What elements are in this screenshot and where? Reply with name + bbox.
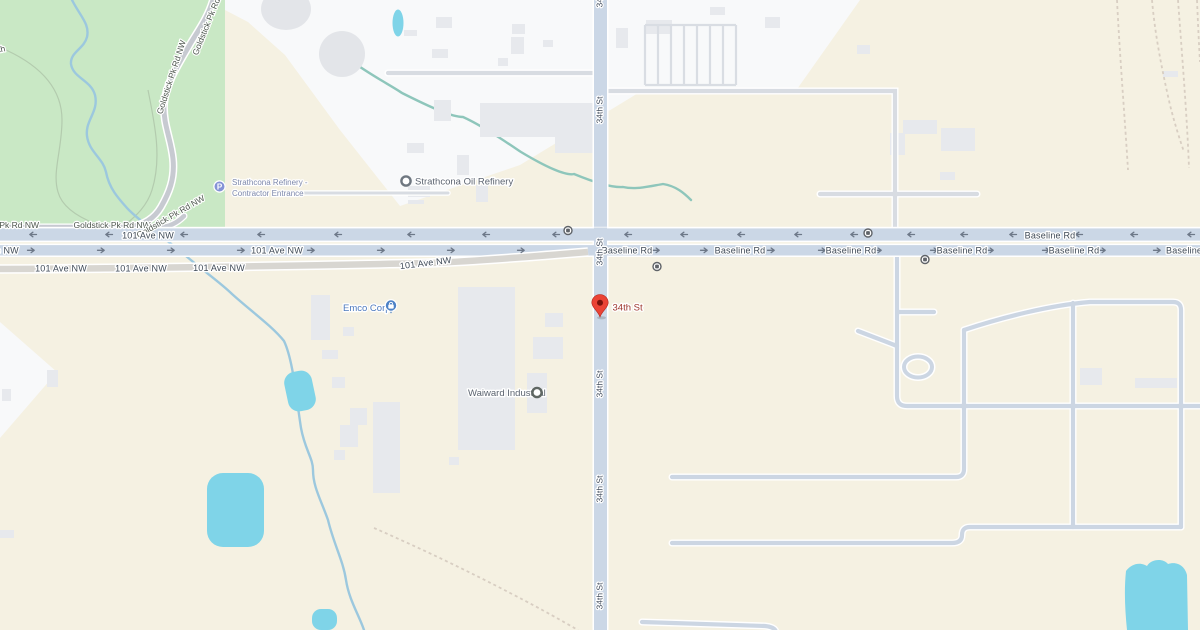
parking-label-line2: Contractor Entrance bbox=[232, 189, 304, 198]
parking-icon[interactable]: P bbox=[214, 181, 225, 192]
park-area bbox=[0, 0, 225, 228]
map-canvas[interactable]: ch Goldstick Pk Rd NW Goldstick Pk Rd NW… bbox=[0, 0, 1200, 630]
poi-strathcona-oil-refinery[interactable]: Strathcona Oil Refinery bbox=[401, 176, 513, 187]
baseline-rd-label: Baseline Rd bbox=[602, 246, 653, 256]
transit-station-icon[interactable] bbox=[864, 229, 872, 237]
34th-st-label: 34th St bbox=[595, 370, 605, 398]
baseline-rd-label: Baseline Rd bbox=[1025, 231, 1076, 241]
transit-station-icon[interactable] bbox=[564, 227, 572, 235]
34th-st-label: 34th St bbox=[595, 475, 605, 503]
baseline-rd-label: Baseline Rd bbox=[1049, 246, 1100, 256]
34th-st-label: 34th St bbox=[595, 0, 605, 7]
101-ave-label: 101 Ave NW bbox=[251, 246, 303, 256]
svg-text:P: P bbox=[217, 182, 223, 191]
pin-label: 34th St bbox=[613, 303, 643, 314]
oil-refinery-label: Strathcona Oil Refinery bbox=[415, 177, 513, 188]
101-ave-label: 101 Ave NW bbox=[122, 231, 174, 241]
transit-station-icon[interactable] bbox=[653, 263, 661, 271]
baseline-rd-label: Baseline Rd bbox=[937, 246, 988, 256]
parking-label-line1: Strathcona Refinery - bbox=[232, 178, 308, 187]
101-ave-label: 101 Ave NW bbox=[115, 264, 167, 274]
baseline-rd-label: Baseline Rd bbox=[826, 246, 877, 256]
poi-ring-icon[interactable] bbox=[532, 388, 541, 397]
34th-st-label: 34th St bbox=[595, 238, 605, 266]
baseline-rd-label: Baseline Rd bbox=[715, 246, 766, 256]
poi-ring-icon[interactable] bbox=[401, 176, 410, 185]
34th-st-label: 34th St bbox=[595, 582, 605, 610]
poi-waiward-industrial[interactable]: Waiward Industrial bbox=[468, 388, 546, 399]
34th-st-label: 34th St bbox=[595, 96, 605, 124]
101-ave-label: 101 Ave NW bbox=[35, 264, 87, 274]
baseline-rd-label-partial: Baseline Rd bbox=[1166, 246, 1200, 256]
emco-label: Emco Corp bbox=[343, 303, 391, 314]
101-ave-label-partial: 101 Ave NW bbox=[0, 246, 19, 256]
map-stage: ch Goldstick Pk Rd NW Goldstick Pk Rd NW… bbox=[0, 0, 1200, 630]
101-ave-label: 101 Ave NW bbox=[193, 263, 245, 273]
transit-station-icon[interactable] bbox=[921, 256, 929, 264]
goldstick-road-label: Goldstick Pk Rd NW bbox=[0, 220, 39, 230]
